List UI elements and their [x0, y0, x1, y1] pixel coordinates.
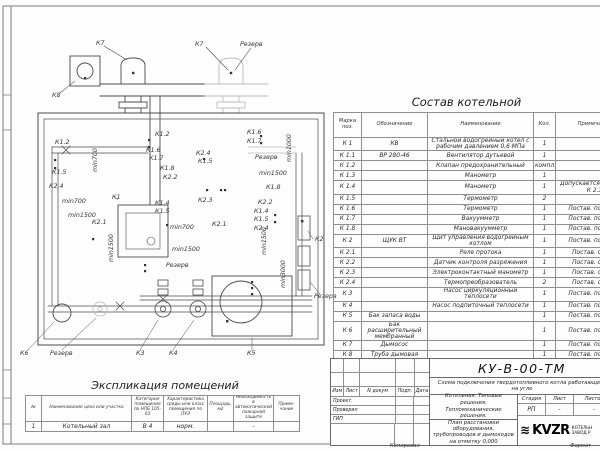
plan-label: Резерв — [255, 154, 278, 161]
equipment-cell: К 2 — [334, 234, 362, 247]
equipment-cell: 1 — [534, 268, 556, 278]
plan-label: К7 — [195, 41, 203, 48]
plan-label: К1.7 — [149, 155, 164, 162]
equipment-row: К 6Бак расширительный мембранный1Постав.… — [334, 321, 600, 341]
stage-value-cell: РП — [518, 404, 546, 415]
equipment-cell — [556, 151, 600, 161]
logo-caption: КОТЕЛЬН ЗАВОД Р — [572, 425, 593, 436]
equipment-cell: Бак запаса воды — [362, 311, 428, 321]
equipment-cell: Постав. по согла — [556, 234, 600, 247]
equipment-cell — [362, 161, 428, 171]
sign-cell: Подп. — [396, 387, 414, 396]
equipment-cell: К 3 — [334, 288, 362, 301]
explication-table: №Наименование цеха или участкаКатегория … — [25, 395, 300, 432]
equipment-cell: К 6 — [334, 321, 362, 341]
equipment-cell: Манометр — [428, 181, 534, 194]
explication-cell: - — [234, 421, 274, 431]
equipment-row: К 1.7Вакуумметр1Постав. по согла — [334, 214, 600, 224]
equipment-cell: КВ — [362, 138, 428, 151]
sign-row: ИзмЛистN докумПодп.Дата — [331, 387, 429, 397]
smoke-exhauster-k7-reserve — [206, 47, 251, 113]
equipment-cell: 1 — [534, 258, 556, 268]
equipment-cell: К 2.3 — [334, 268, 362, 278]
equipment-column-header: Примечание — [556, 113, 600, 138]
plan-label: К5 — [247, 350, 255, 357]
sign-cell-empty — [396, 415, 415, 423]
sign-cell: Изм — [331, 387, 344, 396]
sign-cell-empty — [414, 415, 429, 423]
plan-label: К1.4 — [254, 208, 269, 215]
sign-cell-empty — [344, 373, 359, 386]
explication-row: 1Котельный залВ 4норм.- — [26, 421, 300, 431]
sign-cell: Проверил — [331, 406, 396, 414]
sign-row — [331, 373, 429, 387]
sign-cell-empty — [331, 373, 344, 386]
equipment-cell: компл. — [534, 161, 556, 171]
equipment-cell — [556, 194, 600, 204]
plan-label: К1.8 — [160, 165, 175, 172]
equipment-cell: Постав. с ЩУК — [556, 258, 600, 268]
plan-label: min3000 — [280, 260, 287, 288]
equipment-cell: Постав. с ЩУК — [556, 248, 600, 258]
explication-cell: норм. — [164, 421, 208, 431]
equipment-row: К 1.4Манометр1Допускается зам. поз. К 2.… — [334, 181, 600, 194]
equipment-cell: Постав. с ЩУК — [556, 268, 600, 278]
equipment-cell: Стальной водогрейный котел с рабочим дав… — [428, 138, 534, 151]
plan-label: К4 — [169, 350, 177, 357]
equipment-cell: Бак расширительный мембранный — [362, 321, 428, 341]
plan-label: К2.1 — [92, 219, 107, 226]
equipment-cell: 1 — [534, 224, 556, 234]
equipment-cell: К 2.1 — [334, 248, 362, 258]
explication-column-header: Необходимость в автоматической пожарной … — [234, 396, 274, 422]
equipment-cell: 1 — [534, 288, 556, 301]
plan-label: Резерв — [50, 350, 73, 357]
plan-label: К1.6 — [146, 147, 161, 154]
sign-cell: N докум — [360, 387, 396, 396]
sign-row — [331, 359, 429, 373]
equipment-row: К 7Дымосос1Постав. по согла — [334, 341, 600, 351]
equipment-cell: 1 — [534, 204, 556, 214]
explication-cell: В 4 — [132, 421, 164, 431]
equipment-cell: Постав. по согла — [556, 288, 600, 301]
sign-cell-empty — [414, 424, 429, 445]
equipment-cell: Дымосос — [362, 341, 428, 351]
equipment-row: К 1.6Термометр1Постав. по согла — [334, 204, 600, 214]
sign-cell: ГИП — [331, 415, 396, 423]
sign-row: ГИП — [331, 415, 429, 424]
equipment-cell: Термометр — [428, 204, 534, 214]
equipment-cell: К 2.4 — [334, 278, 362, 288]
equipment-table: Марка поз.ОбозначениеНаименованиеКол.При… — [333, 112, 600, 361]
equipment-cell — [362, 288, 428, 301]
equipment-cell: К 4 — [334, 301, 362, 311]
equipment-cell — [362, 204, 428, 214]
equipment-cell: К 1.3 — [334, 171, 362, 181]
equipment-cell: Насос подпиточный теплосети — [428, 301, 534, 311]
equipment-cell: К 1.8 — [334, 224, 362, 234]
equipment-cell — [428, 341, 534, 351]
plan-label: К1.2 — [55, 139, 70, 146]
equipment-row: К 2.1Реле протока1Постав. с ЩУК — [334, 248, 600, 258]
equipment-cell: Постав. по согла — [556, 224, 600, 234]
document-number: КУ-В-00-ТМ — [430, 359, 600, 378]
sign-cell-empty — [396, 373, 414, 386]
title-block-sign-area: ИзмЛистN докумПодп.ДатаПроект.ПроверилГИ… — [331, 359, 430, 445]
equipment-column-header: Кол. — [534, 113, 556, 138]
sign-cell-empty — [415, 373, 429, 386]
explication-column-header: Наименование цеха или участка — [42, 396, 132, 422]
equipment-cell: Допускается зам. поз. К 2.3 — [556, 181, 600, 194]
drawing-sheet: К7К7РезервК8К1.2min700К1.5К2.4min700min1… — [0, 0, 600, 450]
plan-label: min1500 — [172, 246, 200, 253]
equipment-cell — [362, 171, 428, 181]
equipment-row: К 4Насос подпиточный теплосети1Постав. п… — [334, 301, 600, 311]
stage-header-cell: Листов — [574, 395, 600, 403]
plan-label: К1.5 — [155, 208, 170, 215]
stage-header-row: СтадияЛистЛистов — [518, 395, 600, 404]
sign-cell-empty — [396, 406, 415, 414]
scheme-title: Схема подключения твердотопливного котла… — [430, 378, 600, 394]
plan-label: min700 — [170, 224, 194, 231]
equipment-cell: К 1.1 — [334, 151, 362, 161]
equipment-cell: Электроконтактный манометр — [428, 268, 534, 278]
plan-label: min1500 — [68, 212, 96, 219]
equipment-cell — [556, 161, 600, 171]
sign-cell: Лист — [344, 387, 359, 396]
equipment-cell — [362, 268, 428, 278]
sign-cell-empty — [360, 373, 396, 386]
copied-label: Копировал — [390, 443, 420, 449]
sign-cell-empty — [415, 359, 429, 372]
equipment-cell: К 2.2 — [334, 258, 362, 268]
plan-label: К1.2 — [155, 131, 170, 138]
logo-word: KVZR — [532, 423, 570, 438]
equipment-cell: К 1 — [334, 138, 362, 151]
manufacturer-logo: ≋ KVZR КОТЕЛЬН ЗАВОД Р — [518, 416, 600, 445]
explication-table-section: Экспликация помещений №Наименование цеха… — [25, 379, 305, 432]
stage-value-cell: - — [546, 404, 574, 415]
equipment-cell: Насос циркуляционный теплосети — [428, 288, 534, 301]
plan-label: Резерв — [166, 262, 189, 269]
plan-label: min700 — [62, 198, 86, 205]
plan-label: min1500 — [261, 227, 268, 255]
sign-cell-empty — [331, 424, 395, 445]
pump-k3 — [140, 280, 171, 350]
equipment-cell — [362, 278, 428, 288]
explication-column-header: Приме- чание — [274, 396, 300, 422]
equipment-cell: Клапан предохранительный — [428, 161, 534, 171]
equipment-table-title: Состав котельной — [333, 95, 600, 109]
equipment-cell — [428, 321, 534, 341]
sign-cell-empty — [414, 406, 429, 414]
equipment-cell: Постав. по согла — [556, 321, 600, 341]
equipment-table-section: Состав котельной Марка поз.ОбозначениеНа… — [333, 95, 600, 361]
explication-table-header-row: №Наименование цеха или участкаКатегория … — [26, 396, 300, 422]
equipment-row: К 2ЩУК ВТЩит управления водогрейным котл… — [334, 234, 600, 247]
equipment-cell: К 1.7 — [334, 214, 362, 224]
equipment-row: К 3Насос циркуляционный теплосети1Постав… — [334, 288, 600, 301]
plan-label: min1500 — [108, 234, 115, 262]
plan-label: К1 — [112, 194, 120, 201]
equipment-cell — [362, 301, 428, 311]
equipment-cell: 1 — [534, 248, 556, 258]
stage-value-cell: - — [574, 404, 600, 415]
equipment-cell: 1 — [534, 311, 556, 321]
plan-label: К1.7 — [247, 138, 262, 145]
equipment-row: К 1.5Термометр2 — [334, 194, 600, 204]
equipment-cell: Датчик контроля разряжения — [428, 258, 534, 268]
equipment-cell: 1 — [534, 301, 556, 311]
plan-label: К1.6 — [247, 129, 262, 136]
equipment-cell: Постав. по согла — [556, 311, 600, 321]
chimney-k8 — [60, 56, 100, 93]
control-panel-k2 — [298, 216, 320, 294]
plan-label: К2.2 — [163, 174, 178, 181]
explication-cell: 1 — [26, 421, 42, 431]
sign-row: Проверил — [331, 406, 429, 415]
plan-label: К2.2 — [258, 199, 273, 206]
equipment-cell: Мановакуумметр — [428, 224, 534, 234]
equipment-cell: ЩУК ВТ — [362, 234, 428, 247]
equipment-cell: 1 — [534, 214, 556, 224]
equipment-cell: 1 — [534, 321, 556, 341]
equipment-cell — [362, 248, 428, 258]
plan-label: К7 — [96, 40, 104, 47]
sign-row: Проект. — [331, 397, 429, 406]
equipment-cell — [362, 224, 428, 234]
plan-label: К1.5 — [254, 216, 269, 223]
explication-column-header: Характеристика среды или класс помещения… — [164, 396, 208, 422]
equipment-cell: Постав. по согла — [556, 301, 600, 311]
stage-header-cell: Стадия — [518, 395, 546, 403]
title-block-names: Котельная. Типовые решения. Тепломеханич… — [430, 395, 518, 445]
expansion-tank-k6 — [28, 304, 71, 350]
object-title: Котельная. Типовые решения. Тепломеханич… — [430, 395, 517, 420]
equipment-cell: К 5 — [334, 311, 362, 321]
pump-k4 — [173, 280, 206, 350]
stage-values-row: РП-- — [518, 404, 600, 416]
plan-label: К2.1 — [212, 221, 227, 228]
equipment-row: К 2.4Термопреобразователь2Постав. с ЩУК — [334, 278, 600, 288]
explication-cell: Котельный зал — [42, 421, 132, 431]
plan-label: К1.5 — [52, 169, 67, 176]
equipment-cell: 2 — [534, 194, 556, 204]
sign-cell: Проект. — [331, 397, 396, 405]
equipment-column-header: Обозначение — [362, 113, 428, 138]
sign-cell-empty — [396, 359, 414, 372]
equipment-cell — [362, 194, 428, 204]
plan-label: К1.5 — [198, 158, 213, 165]
equipment-cell: Вакуумметр — [428, 214, 534, 224]
equipment-cell — [556, 171, 600, 181]
stage-header-cell: Лист — [546, 395, 574, 403]
pump-reserve — [62, 302, 107, 350]
equipment-cell: Термопреобразователь — [428, 278, 534, 288]
explication-cell — [274, 421, 300, 431]
logo-caption-line1: КОТЕЛЬН — [572, 425, 593, 430]
equipment-cell: Постав. с ЩУК — [556, 278, 600, 288]
equipment-cell: К 1.6 — [334, 204, 362, 214]
explication-column-header: Категория помещения по НПБ 105-03 — [132, 396, 164, 422]
equipment-row: К 1.8Мановакуумметр1Постав. по согла — [334, 224, 600, 234]
equipment-cell: Термометр — [428, 194, 534, 204]
equipment-cell — [362, 258, 428, 268]
plan-label: К2.4 — [49, 183, 64, 190]
smoke-exhauster-k7 — [104, 46, 147, 113]
equipment-cell: ВР 280-46 — [362, 151, 428, 161]
title-block-stage: СтадияЛистЛистов РП-- ≋ KVZR КОТЕЛЬН ЗАВ… — [518, 395, 600, 445]
equipment-row: К 1.2Клапан предохранительныйкомпл. — [334, 161, 600, 171]
sign-row — [331, 424, 429, 445]
logo-caption-line2: ЗАВОД Р — [572, 430, 591, 435]
sign-cell-empty — [396, 397, 415, 405]
equipment-cell: Вентилятор дутьевой — [428, 151, 534, 161]
equipment-cell: Постав. по согла — [556, 341, 600, 351]
sign-cell-empty — [414, 397, 429, 405]
equipment-cell: 1 — [534, 171, 556, 181]
equipment-cell: Манометр — [428, 171, 534, 181]
explication-table-title: Экспликация помещений — [25, 379, 305, 392]
plan-label: К2.4 — [196, 150, 211, 157]
equipment-cell: К 1.2 — [334, 161, 362, 171]
equipment-row: К 1.1ВР 280-46Вентилятор дутьевой1 — [334, 151, 600, 161]
equipment-row: К 2.2Датчик контроля разряжения1Постав. … — [334, 258, 600, 268]
equipment-column-header: Наименование — [428, 113, 534, 138]
equipment-row: К 5Бак запаса воды1Постав. по согла — [334, 311, 600, 321]
equipment-row: К 2.3Электроконтактный манометр1Постав. … — [334, 268, 600, 278]
equipment-cell — [428, 311, 534, 321]
sign-cell: Дата — [415, 387, 429, 396]
plan-label: К3 — [136, 350, 144, 357]
plan-label: min1000 — [286, 134, 293, 162]
equipment-cell: 1 — [534, 341, 556, 351]
drawing-title: План расстановки оборудования, трубопров… — [430, 420, 517, 445]
explication-cell — [208, 421, 234, 431]
equipment-cell — [362, 181, 428, 194]
logo-wave-icon: ≋ — [520, 424, 530, 436]
explication-column-header: № — [26, 396, 42, 422]
equipment-table-header-row: Марка поз.ОбозначениеНаименованиеКол.При… — [334, 113, 600, 138]
equipment-cell: К 1.5 — [334, 194, 362, 204]
format-label: Формат — [570, 443, 591, 449]
plan-label: min700 — [92, 148, 99, 172]
equipment-cell — [362, 214, 428, 224]
title-block-right: КУ-В-00-ТМ Схема подключения твердотопли… — [430, 359, 600, 445]
plan-label: К6 — [20, 350, 28, 357]
sign-cell-empty — [395, 424, 414, 445]
plan-label: К1.4 — [155, 200, 170, 207]
sign-cell-empty — [360, 359, 396, 372]
equipment-cell: 1 — [534, 234, 556, 247]
equipment-cell: Постав. по согла — [556, 214, 600, 224]
plan-label: min1500 — [259, 170, 287, 177]
plan-label: К2 — [315, 236, 323, 243]
sign-cell-empty — [344, 359, 359, 372]
equipment-column-header: Марка поз. — [334, 113, 362, 138]
equipment-cell: Реле протока — [428, 248, 534, 258]
equipment-cell — [556, 138, 600, 151]
sign-cell-empty — [331, 359, 344, 372]
plan-label: К8 — [52, 92, 60, 99]
equipment-row: К 1КВСтальной водогрейный котел с рабочи… — [334, 138, 600, 151]
equipment-cell: 2 — [534, 278, 556, 288]
equipment-cell: Щит управления водогрейным котлом — [428, 234, 534, 247]
equipment-cell: К 1.4 — [334, 181, 362, 194]
plan-label: К2.3 — [198, 197, 213, 204]
equipment-cell: 1 — [534, 138, 556, 151]
equipment-cell: К 7 — [334, 341, 362, 351]
equipment-cell: Постав. по согла — [556, 204, 600, 214]
equipment-row: К 1.3Манометр1 — [334, 171, 600, 181]
equipment-cell: 1 — [534, 151, 556, 161]
explication-column-header: Площадь, м2 — [208, 396, 234, 422]
title-block: ИзмЛистN докумПодп.ДатаПроект.ПроверилГИ… — [330, 358, 600, 446]
plan-label: Резерв — [240, 41, 263, 48]
plan-label: К1.8 — [266, 184, 281, 191]
equipment-cell: 1 — [534, 181, 556, 194]
